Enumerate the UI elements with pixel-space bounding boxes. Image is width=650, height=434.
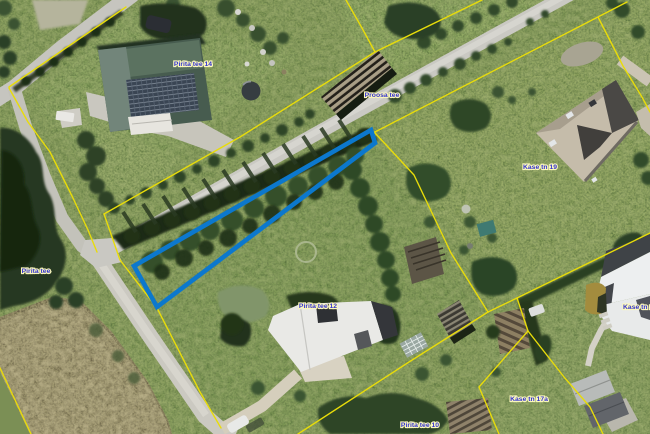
svg-text:Kase tn 19: Kase tn 19	[523, 164, 557, 171]
svg-text:Kase tn 17: Kase tn 17	[623, 304, 650, 311]
svg-text:Pirita tee 14: Pirita tee 14	[174, 61, 212, 68]
svg-text:Pirita tee 12: Pirita tee 12	[299, 303, 337, 310]
svg-text:Proosa tee: Proosa tee	[365, 92, 400, 99]
svg-text:Pirita tee 10: Pirita tee 10	[401, 422, 439, 429]
svg-text:Pirita tee: Pirita tee	[22, 268, 51, 275]
svg-text:Kase tn 17a: Kase tn 17a	[510, 396, 548, 403]
